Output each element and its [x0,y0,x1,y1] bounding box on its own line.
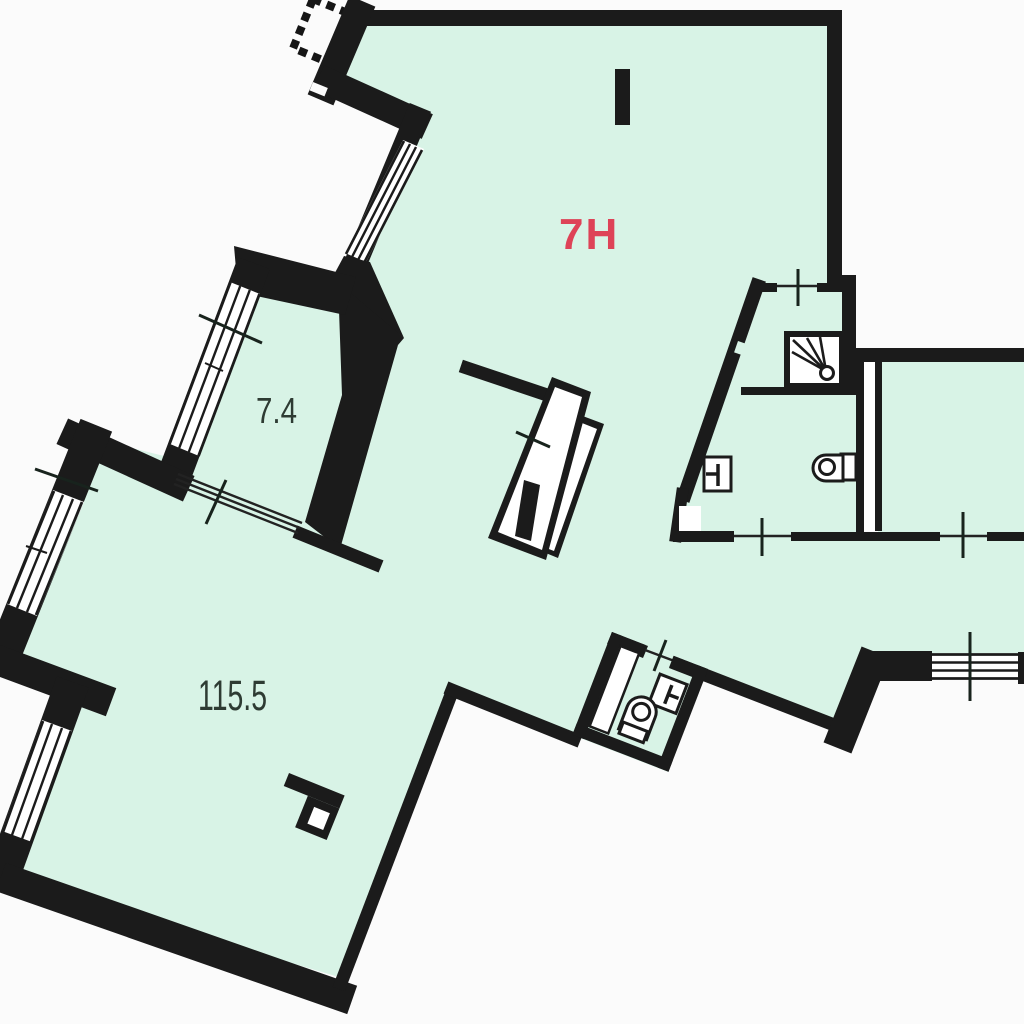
svg-text:115.5: 115.5 [198,672,267,720]
svg-text:7H: 7H [559,210,619,259]
svg-text:7.4: 7.4 [256,390,297,431]
